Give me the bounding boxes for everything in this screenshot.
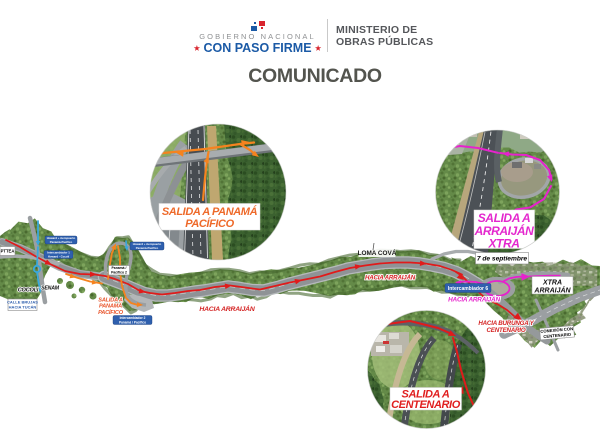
svg-text:ARRAIJÁN: ARRAIJÁN <box>533 286 571 295</box>
svg-text:XTRA: XTRA <box>487 237 519 251</box>
svg-text:Howard - Cocolí: Howard - Cocolí <box>48 255 70 259</box>
svg-text:CENTENARIO: CENTENARIO <box>391 399 461 411</box>
svg-text:HACIA TUCÁN: HACIA TUCÁN <box>9 305 37 310</box>
svg-text:PACÍFICO: PACÍFICO <box>185 217 234 230</box>
svg-text:SALIDA A: SALIDA A <box>98 298 123 304</box>
svg-text:PANAMÁ: PANAMÁ <box>99 303 122 310</box>
svg-text:HACIA ARRAIJÁN: HACIA ARRAIJÁN <box>448 295 500 304</box>
svg-text:7 de septiembre: 7 de septiembre <box>477 256 528 263</box>
svg-text:PTTEA: PTTEA <box>1 249 15 254</box>
svg-text:SALIDA A: SALIDA A <box>478 211 531 225</box>
svg-text:LOMA COVÁ: LOMA COVÁ <box>358 248 397 257</box>
svg-text:Intercambiador 2: Intercambiador 2 <box>120 316 146 320</box>
svg-text:PACÍFICO: PACÍFICO <box>98 309 124 316</box>
svg-text:Panamá-Pacífico: Panamá-Pacífico <box>50 240 73 244</box>
svg-text:CENTENARIO: CENTENARIO <box>487 327 526 334</box>
svg-text:SENAM: SENAM <box>41 286 60 292</box>
svg-text:XTRA: XTRA <box>542 280 562 287</box>
svg-text:HACIA ARRAIJÁN: HACIA ARRAIJÁN <box>199 304 256 313</box>
svg-text:HACIA ARRAIJÁN: HACIA ARRAIJÁN <box>365 275 416 282</box>
svg-text:Panamá /: Panamá / <box>112 266 127 270</box>
svg-text:Panamá-Pacífico: Panamá-Pacífico <box>136 246 159 250</box>
svg-text:COCOLI: COCOLI <box>18 288 39 294</box>
svg-text:Panamá / Pacífico: Panamá / Pacífico <box>119 320 146 324</box>
svg-text:Pacífico 2: Pacífico 2 <box>111 271 127 275</box>
svg-text:Intercambiador 6: Intercambiador 6 <box>448 286 489 292</box>
svg-text:SALIDA A PANAMÁ: SALIDA A PANAMÁ <box>162 205 258 218</box>
